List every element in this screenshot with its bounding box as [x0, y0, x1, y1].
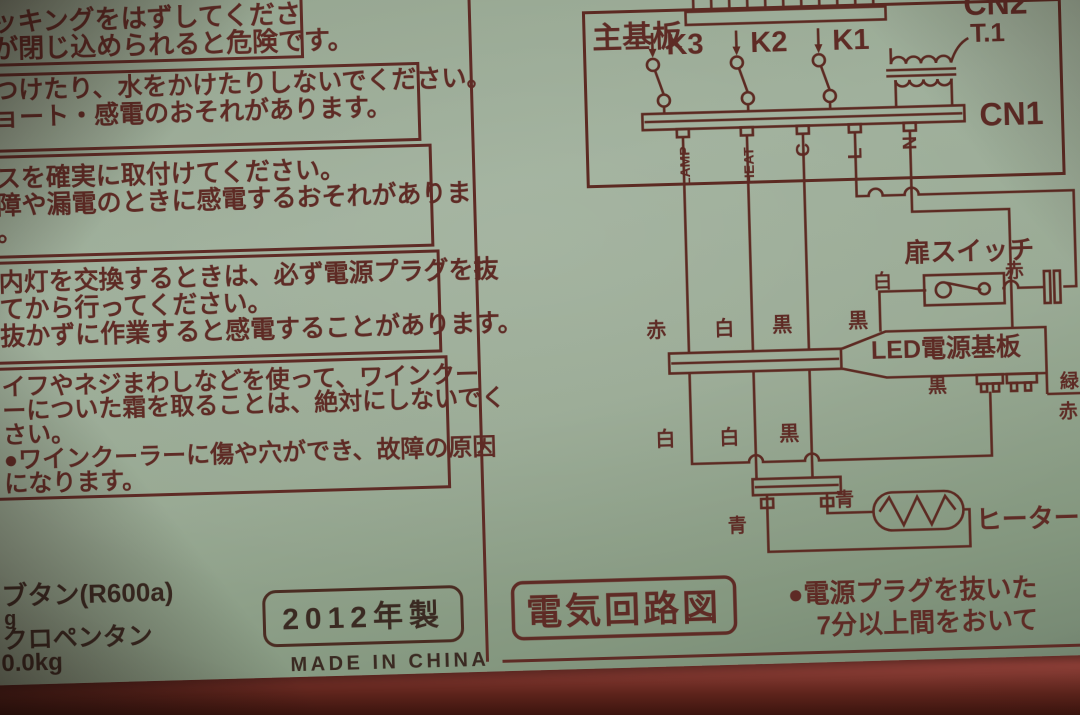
diagram-title: 電気回路図 [526, 586, 722, 632]
led-board-label: LED電源基板 [871, 333, 1022, 365]
warning-3-line-3: 。 [0, 219, 23, 248]
warning-5-line-4: ●ワインクーラーに傷や穴ができ、故障の原因 [3, 432, 496, 474]
inline-connector-2 [753, 477, 841, 495]
appliance-label-photo: ッキングをはずしてくださ が閉じ込められると危険です。 つけたり、水をかけたりし… [0, 0, 1080, 715]
door-switch-red: 赤 [1005, 260, 1025, 283]
manufacture-info: 2012年製 MADE IN CHINA [263, 586, 489, 677]
label-artwork: ッキングをはずしてくださ が閉じ込められると危険です。 つけたり、水をかけたりし… [0, 0, 1080, 686]
wire-white-label: 白 [714, 316, 735, 341]
relay-k1-label: K1 [832, 24, 870, 57]
warning-5-line-5: になります。 [4, 467, 146, 498]
inline-connector-1 [669, 349, 841, 374]
year-made: 2012年製 [282, 599, 446, 637]
spec-line-1: ブタン(R600a) [1, 576, 174, 611]
heater-blue-1: 青 [728, 514, 748, 537]
wire-red-label: 赤 [646, 318, 667, 343]
heater-blue-2: 青 [835, 488, 855, 511]
wire-white2-label-2: 白 [719, 425, 740, 450]
wire-white2-label-1: 白 [655, 426, 676, 451]
label-sticker: ッキングをはずしてくださ が閉じ込められると危険です。 つけたり、水をかけたりし… [0, 0, 1080, 686]
note-line-1: ●電源プラグを抜いた [787, 572, 1037, 609]
door-switch-plug [1044, 271, 1061, 303]
spec-lines: ブタン(R600a) g クロペンタン 0.0kg [0, 576, 176, 677]
led-board-green: 緑 [1060, 369, 1080, 393]
wire-black-label-2: 黒 [848, 309, 869, 333]
spec-line-4: 0.0kg [1, 649, 63, 678]
led-board-red: 赤 [1058, 400, 1078, 423]
relay-k3-label: K3 [666, 28, 704, 61]
door-switch-symbol [924, 273, 1005, 305]
wire-black-label-1: 黒 [772, 313, 793, 337]
transformer-label: T.1 [970, 17, 1006, 48]
bottom-rule [503, 643, 1080, 661]
cn1-label: CN1 [979, 95, 1044, 133]
led-board-black: 黒 [928, 375, 948, 398]
heater-label: ヒーター [975, 502, 1080, 535]
cn2-connector [685, 0, 886, 25]
made-in-china: MADE IN CHINA [290, 649, 489, 677]
wire-black2-label: 黒 [779, 422, 800, 446]
warning-boxes: ッキングをはずしてくださ が閉じ込められると危険です。 つけたり、水をかけたりし… [0, 0, 527, 501]
note-line-2: 7分以上間をおいて [816, 604, 1038, 640]
relay-k2-label: K2 [750, 26, 788, 59]
transformer-symbol [885, 38, 970, 107]
door-switch-white: 白 [873, 269, 893, 293]
circuit-diagram: 主基板 CN2 K3 [496, 0, 1080, 649]
